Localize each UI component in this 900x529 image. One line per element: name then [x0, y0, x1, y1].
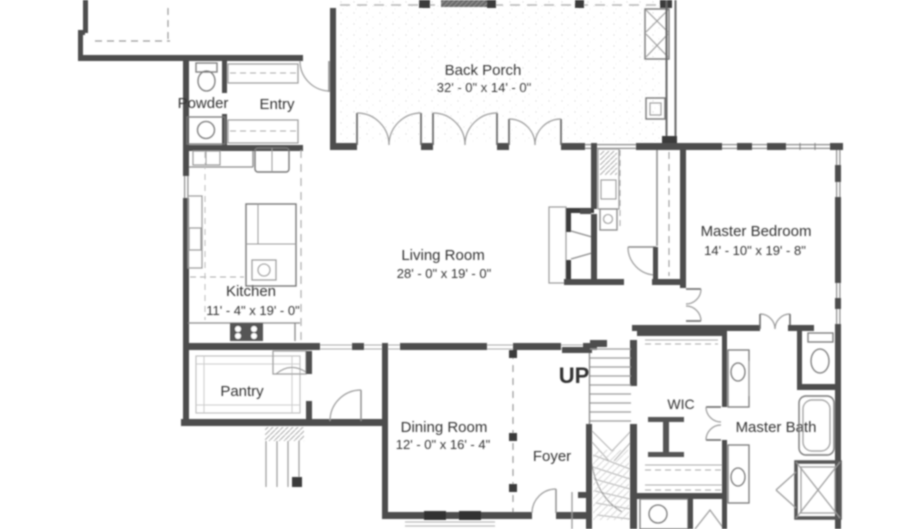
svg-text:Pantry: Pantry — [220, 383, 264, 400]
svg-text:Entry: Entry — [259, 96, 295, 113]
svg-text:11' - 4" x 19' - 0": 11' - 4" x 19' - 0" — [206, 303, 300, 318]
svg-text:32' - 0" x 14' - 0": 32' - 0" x 14' - 0" — [437, 80, 532, 95]
svg-text:UP: UP — [559, 363, 590, 388]
svg-text:Dining Room: Dining Room — [401, 419, 488, 436]
svg-text:Master Bedroom: Master Bedroom — [701, 223, 812, 240]
svg-text:Living Room: Living Room — [401, 247, 484, 264]
svg-text:14' - 10" x 19' - 8": 14' - 10" x 19' - 8" — [704, 243, 806, 258]
svg-text:Master Bath: Master Bath — [736, 419, 817, 436]
svg-text:Powder: Powder — [178, 95, 229, 112]
svg-text:WIC: WIC — [667, 396, 694, 412]
svg-text:Foyer: Foyer — [533, 448, 571, 465]
svg-text:12' - 0" x 16' - 4": 12' - 0" x 16' - 4" — [396, 437, 491, 452]
svg-text:Back Porch: Back Porch — [445, 62, 522, 79]
svg-text:28' - 0" x 19' - 0": 28' - 0" x 19' - 0" — [397, 266, 492, 281]
